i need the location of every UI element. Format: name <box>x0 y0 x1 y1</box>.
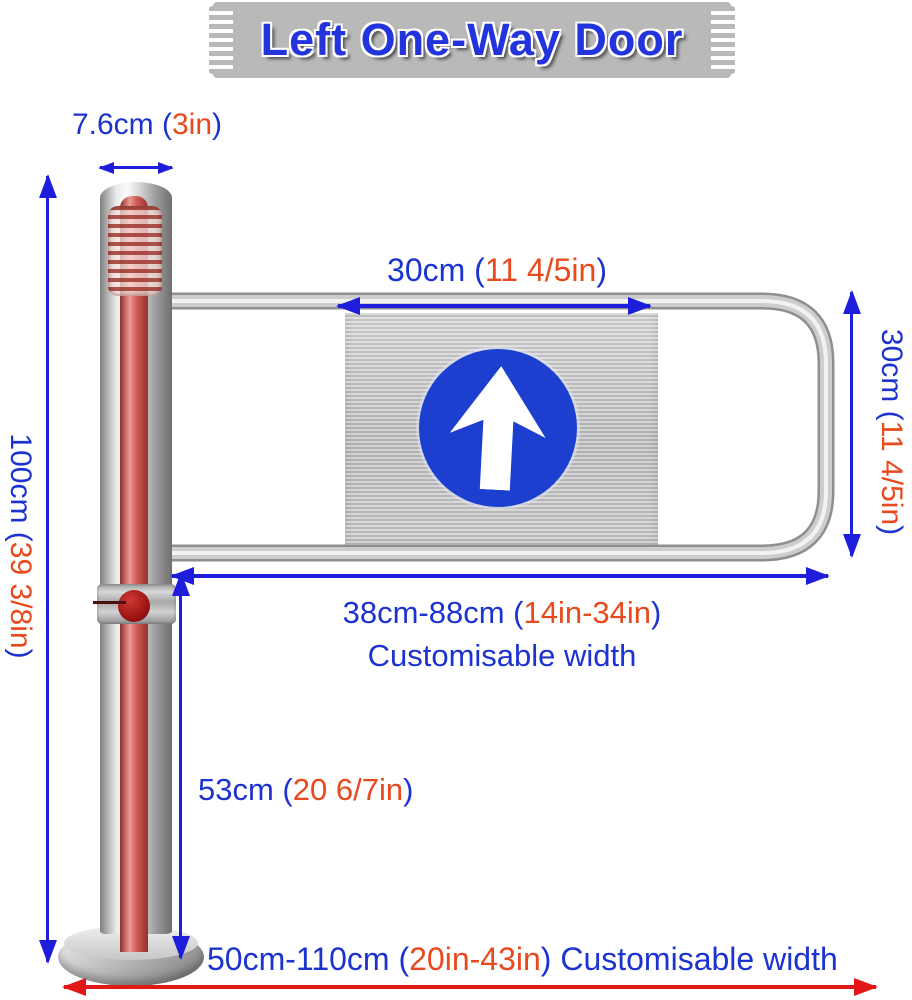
arm-height-arrow <box>850 292 853 556</box>
total-width-label: 50cm-110cm (20in-43in) Customisable widt… <box>207 941 838 978</box>
product-diagram: Left One-Way Door 7.6cm (3in) 100cm (39 … <box>0 0 912 1000</box>
arrow-head-left-icon <box>336 297 360 315</box>
post-diameter-label: 7.6cm (3in) <box>52 108 242 142</box>
total-width-arrow <box>64 985 876 989</box>
arm-length-arrow <box>172 574 828 578</box>
panel-width-arrow <box>338 304 650 308</box>
lower-clearance-label: 53cm (20 6/7in) <box>198 772 413 808</box>
panel-width-label: 30cm (11 4/5in) <box>347 252 647 289</box>
post-diameter-arrow <box>100 166 172 169</box>
arrow-head-up-icon <box>172 572 190 596</box>
arrow-head-up-icon <box>843 290 861 314</box>
arm-length-note: Customisable width <box>327 638 677 674</box>
arrow-head-right-icon <box>806 567 830 585</box>
arrow-head-right-icon <box>854 978 878 996</box>
arrow-head-down-icon <box>172 936 190 960</box>
arrow-head-up-icon <box>39 174 57 198</box>
lower-clearance-arrow <box>179 574 182 958</box>
post-height-arrow <box>46 176 49 962</box>
arrow-head-right-icon <box>158 162 174 174</box>
arrow-head-down-icon <box>843 534 861 558</box>
arrow-head-right-icon <box>628 297 652 315</box>
arrow-head-left-icon <box>62 978 86 996</box>
arm-height-label: 30cm (11 4/5in) <box>874 222 908 642</box>
arrow-head-left-icon <box>98 162 114 174</box>
arrow-head-down-icon <box>39 940 57 964</box>
arm-length-label: 38cm-88cm (14in-34in) <box>302 595 702 631</box>
post-height-label: 100cm (39 3/8in) <box>3 196 37 896</box>
